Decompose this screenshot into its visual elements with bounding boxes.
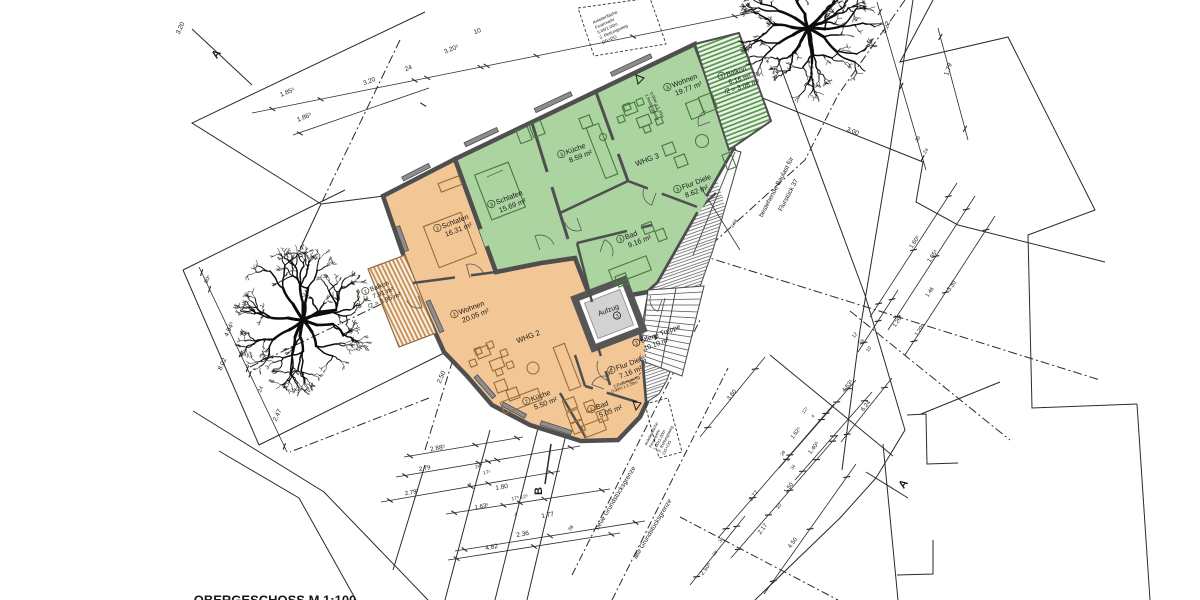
svg-text:OBERGESCHOSS M 1:100: OBERGESCHOSS M 1:100 bbox=[194, 593, 357, 600]
svg-text:B: B bbox=[533, 487, 545, 495]
